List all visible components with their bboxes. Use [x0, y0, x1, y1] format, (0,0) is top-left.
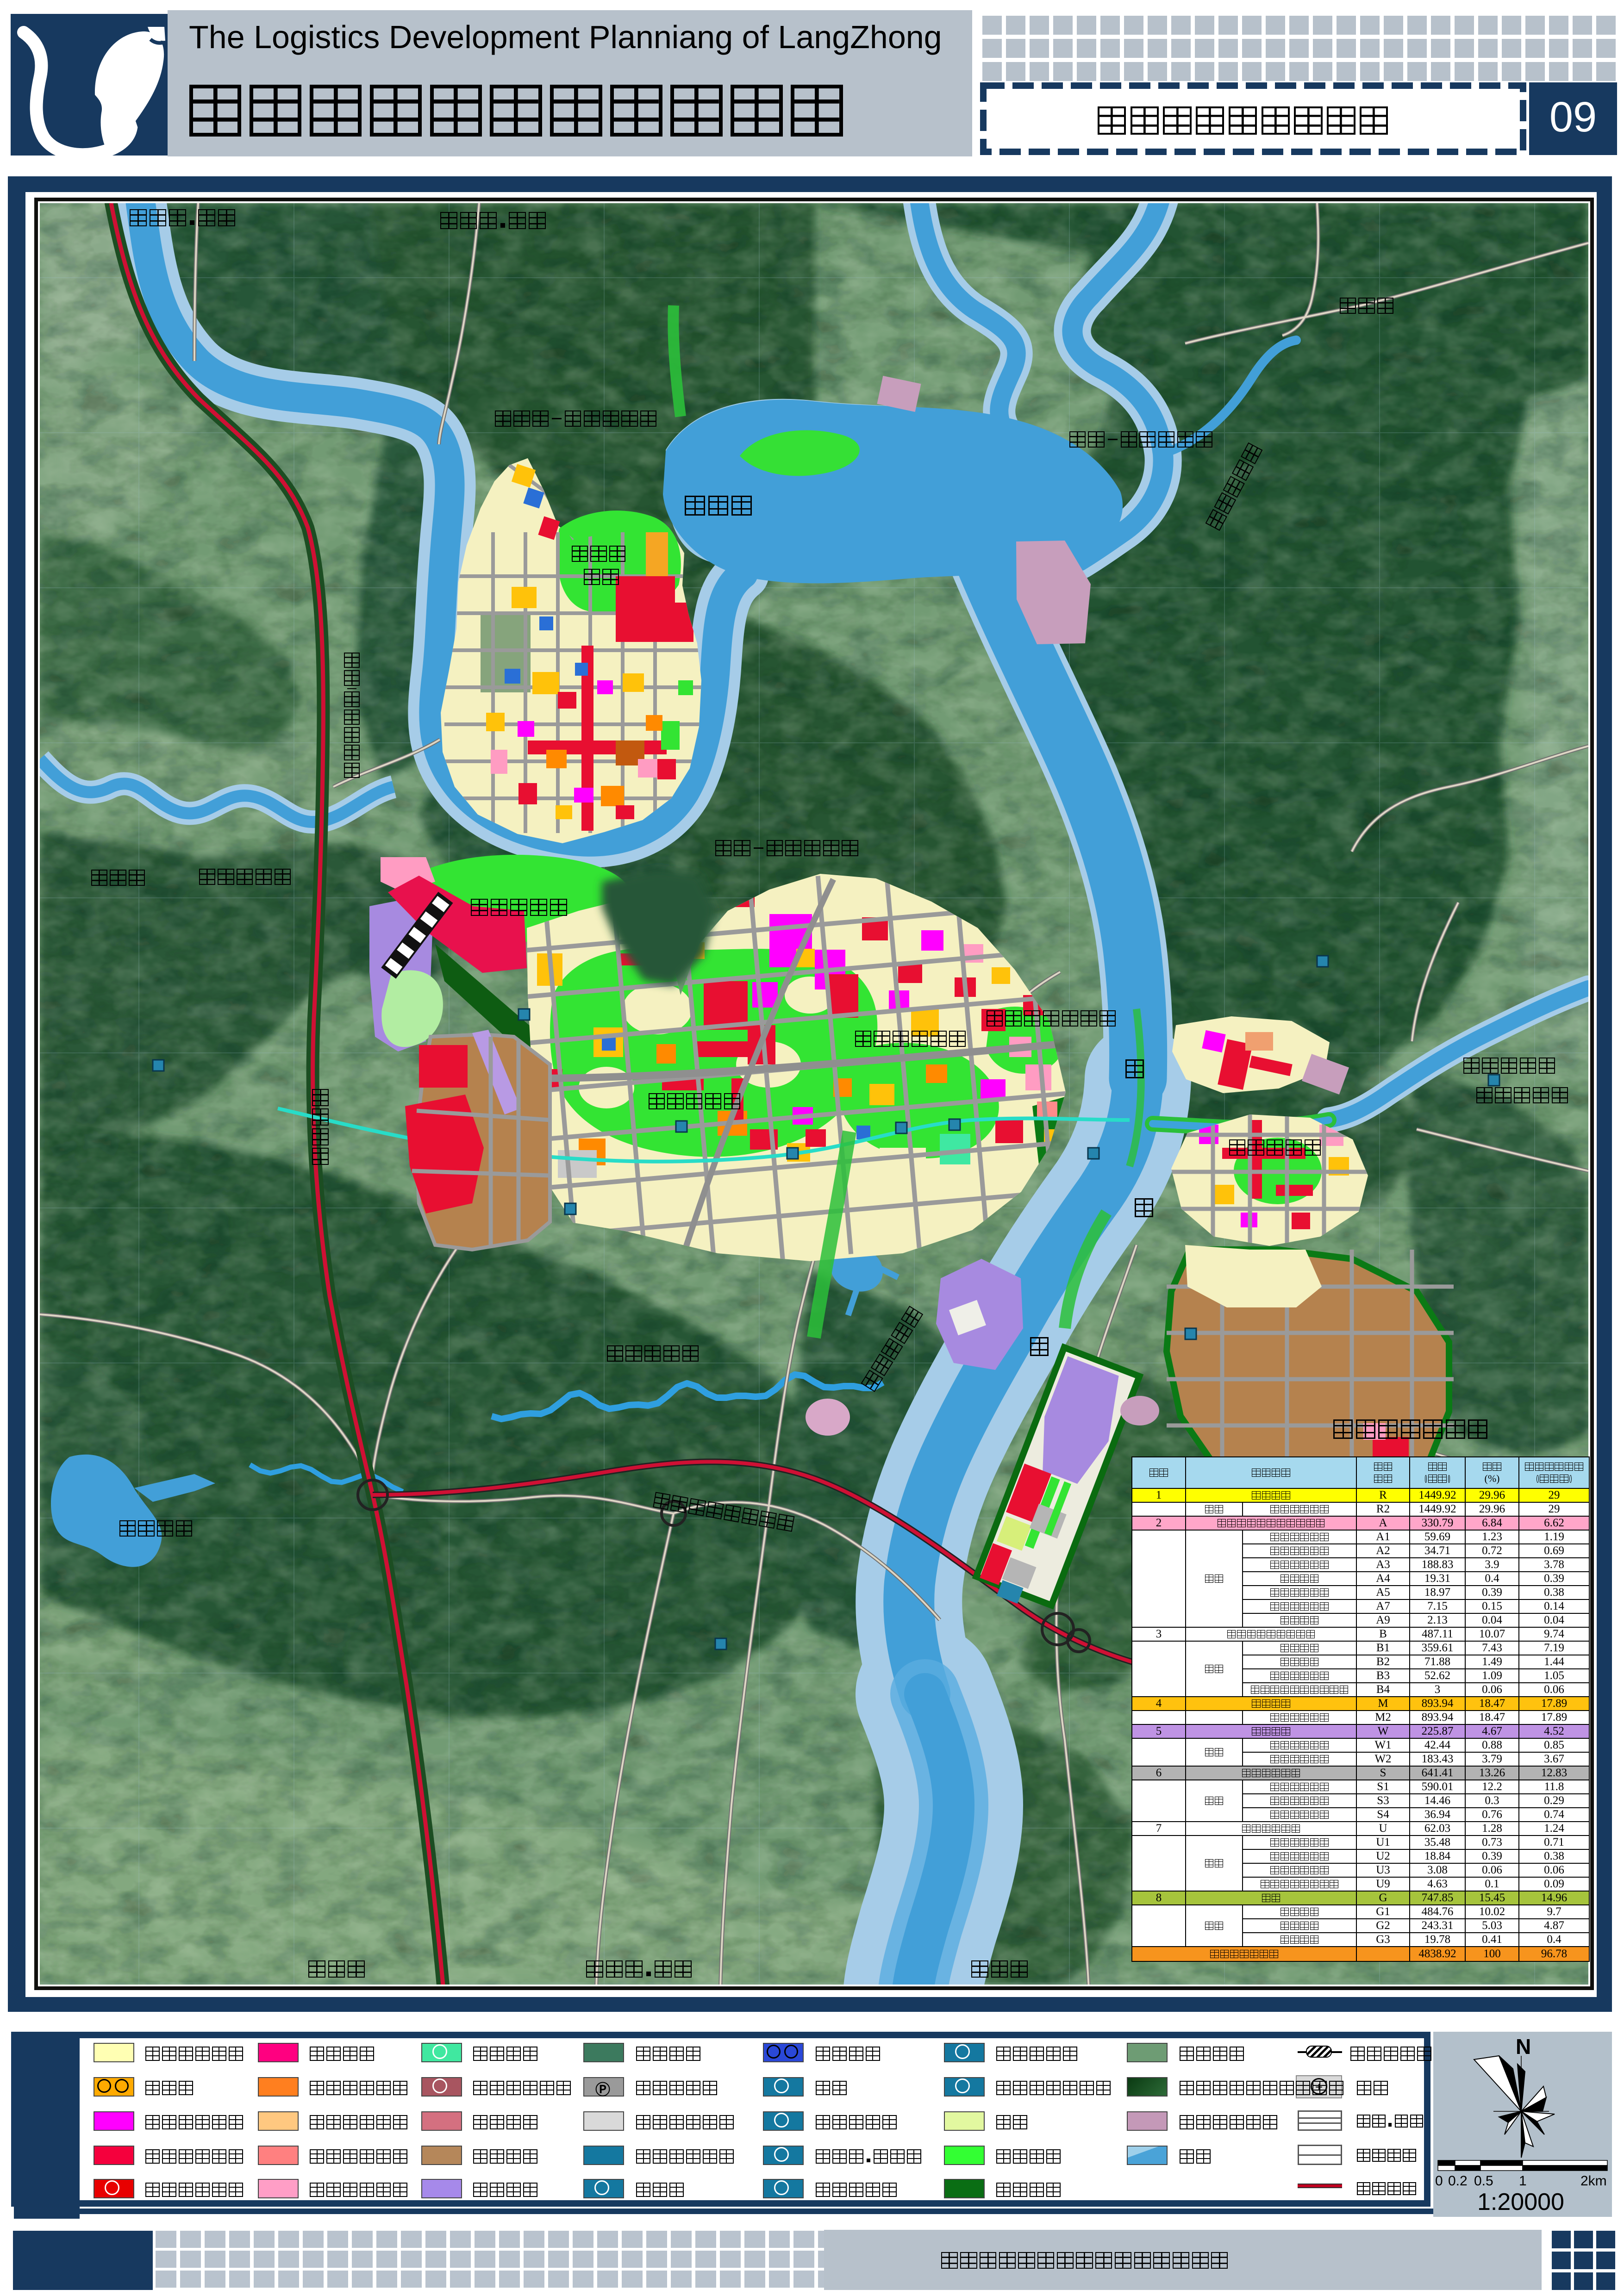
- svg-text:N: N: [1516, 2035, 1531, 2059]
- svg-text:0.5: 0.5: [1474, 2173, 1493, 2189]
- svg-text:1:20000: 1:20000: [1477, 2189, 1564, 2215]
- svg-text:0.2: 0.2: [1448, 2173, 1468, 2189]
- svg-text:2km: 2km: [1580, 2173, 1607, 2189]
- svg-text:0: 0: [1435, 2173, 1443, 2189]
- svg-text:1: 1: [1519, 2173, 1527, 2189]
